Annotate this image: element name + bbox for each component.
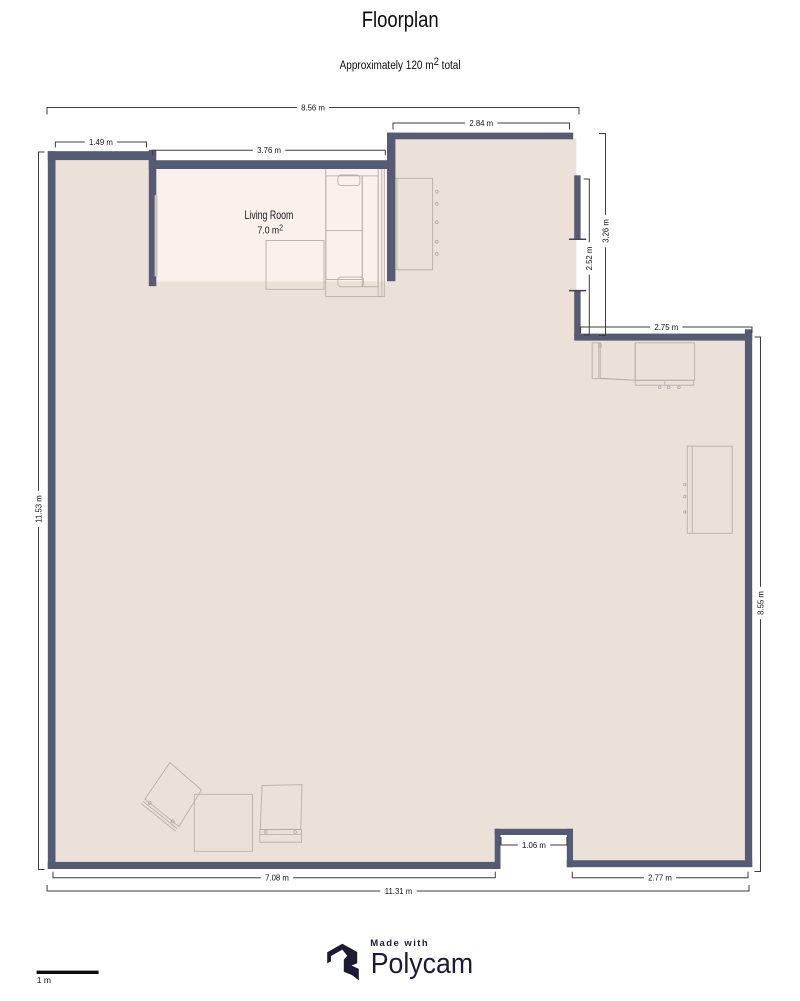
svg-text:3.76 m: 3.76 m	[257, 146, 281, 155]
svg-text:3.26 m: 3.26 m	[601, 219, 610, 243]
svg-text:2.75 m: 2.75 m	[654, 323, 678, 332]
svg-text:8.56 m: 8.56 m	[301, 103, 325, 112]
svg-text:2.52 m: 2.52 m	[585, 247, 594, 271]
svg-text:Polycam: Polycam	[371, 948, 473, 980]
svg-text:7.08 m: 7.08 m	[265, 874, 289, 883]
svg-text:2.84 m: 2.84 m	[469, 119, 493, 128]
svg-text:Living Room: Living Room	[245, 208, 294, 222]
svg-text:Floorplan: Floorplan	[362, 7, 439, 32]
svg-text:1 m: 1 m	[37, 975, 51, 985]
svg-text:8.55 m: 8.55 m	[756, 591, 765, 615]
svg-text:1.49 m: 1.49 m	[89, 138, 113, 147]
svg-text:2.77 m: 2.77 m	[648, 874, 672, 883]
svg-text:11.53 m: 11.53 m	[34, 495, 43, 523]
svg-text:11.31 m: 11.31 m	[385, 887, 413, 896]
svg-text:1.06 m: 1.06 m	[522, 841, 546, 850]
